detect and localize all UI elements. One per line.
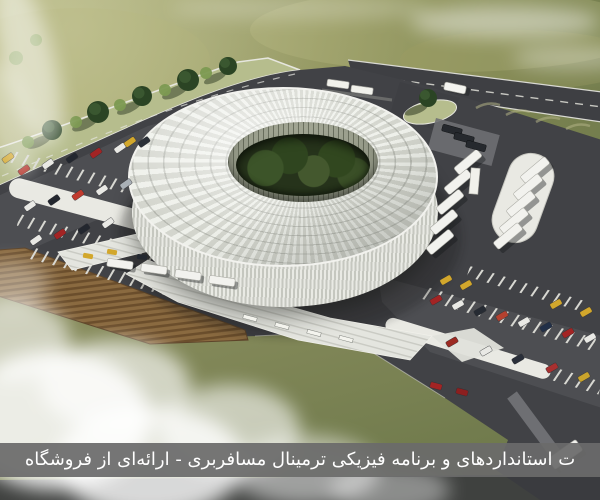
docked-buses [441, 124, 486, 152]
entrance-road-vehicles [83, 249, 239, 290]
bus-fleet-right [426, 149, 555, 259]
caption-text: ت استانداردهای و برنامه فیزیکی ترمینال م… [25, 443, 575, 477]
scene-overlay-svg [0, 0, 600, 500]
render-image: ت استانداردهای و برنامه فیزیکی ترمینال م… [0, 0, 600, 500]
caption-banner: ت استانداردهای و برنامه فیزیکی ترمینال م… [0, 443, 600, 477]
road-bus [443, 82, 470, 96]
fog-clouds [0, 0, 600, 500]
right-parking-cars [429, 274, 596, 396]
top-docked-buses [327, 79, 374, 95]
island-tree [403, 89, 437, 118]
apron-shelters [243, 314, 354, 342]
